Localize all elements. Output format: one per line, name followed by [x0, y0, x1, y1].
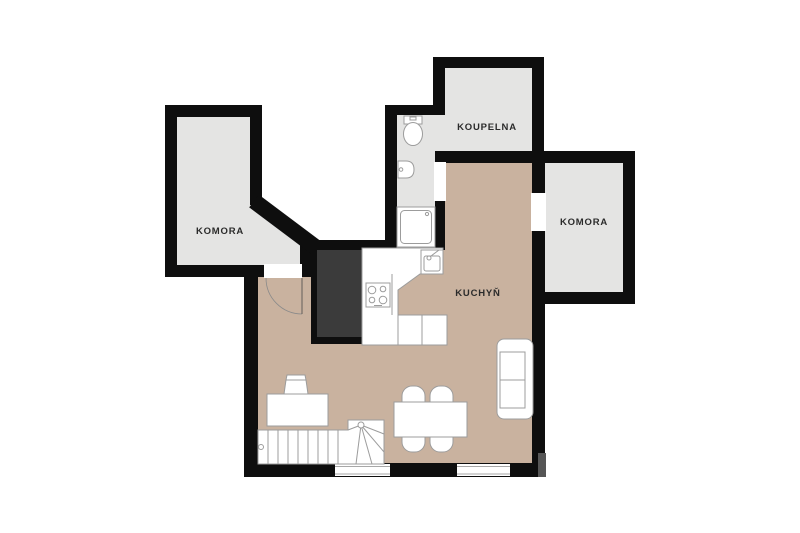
door-koupelna — [434, 162, 446, 201]
kitchen-sink — [421, 250, 443, 274]
door-komora-left — [264, 264, 302, 278]
door-komora-right — [531, 193, 546, 231]
window-right — [457, 464, 510, 476]
floorplan-page: KOMORA KOUPELNA KOMORA KUCHYŇ — [0, 0, 800, 533]
dining-table — [394, 402, 467, 437]
floorplan-canvas: KOMORA KOUPELNA KOMORA KUCHYŇ — [0, 0, 800, 533]
room-label-komora-left: KOMORA — [196, 226, 244, 237]
toilet — [404, 116, 423, 146]
desk-chair — [284, 375, 308, 394]
stove — [366, 283, 390, 307]
window-left — [335, 464, 390, 476]
washbasin — [398, 161, 414, 178]
room-label-koupelna: KOUPELNA — [457, 122, 517, 133]
room-label-kuchyn: KUCHYŇ — [455, 287, 500, 299]
room-label-komora-right: KOMORA — [560, 217, 608, 228]
wall-step — [538, 453, 546, 477]
utility-shaft — [311, 243, 368, 344]
floor-komora-left — [171, 111, 316, 271]
shower — [397, 207, 435, 247]
sofa — [497, 339, 533, 419]
desk — [267, 394, 328, 426]
